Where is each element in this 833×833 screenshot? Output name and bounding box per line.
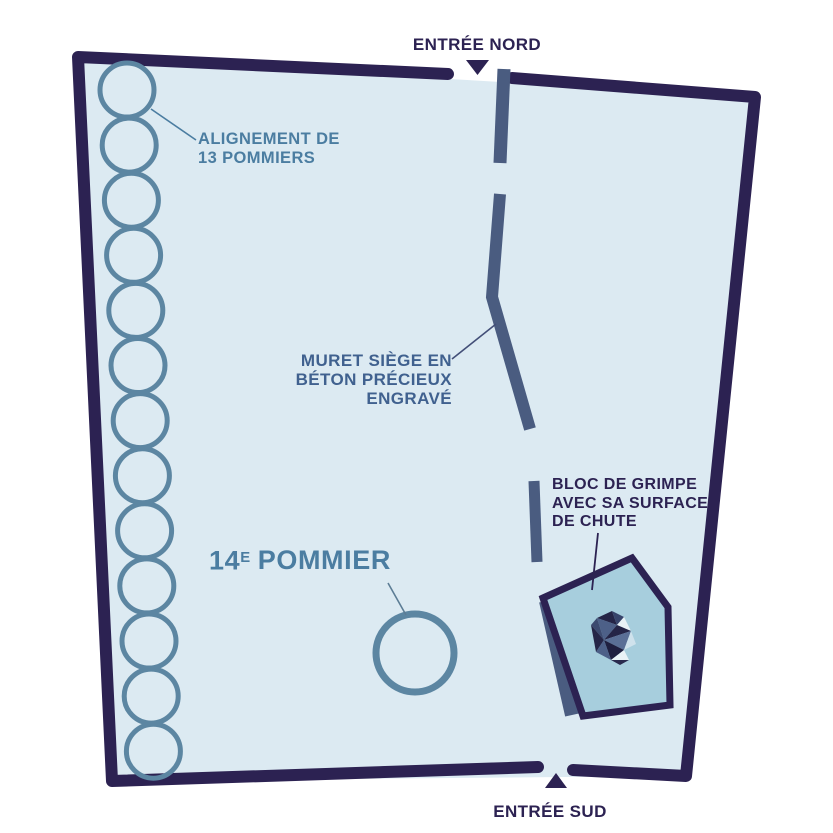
climbing-block-label-line1: BLOC DE GRIMPE: [552, 476, 708, 495]
seat-wall-label-line2: BÉTON PRÉCIEUX: [232, 370, 452, 389]
north-entrance-label: ENTRÉE NORD: [377, 35, 577, 54]
climbing-block-label-line3: DE CHUTE: [552, 513, 708, 532]
tree-14-name: POMMIER: [258, 545, 391, 575]
seat-wall-label-line1: MURET SIÈGE EN: [232, 351, 452, 370]
tree-14-ordinal: E: [240, 550, 251, 566]
north-entrance-arrow: [466, 60, 489, 75]
seat-wall-label-line3: ENGRAVÉ: [232, 389, 452, 408]
south-entrance-label: ENTRÉE SUD: [450, 802, 650, 821]
tree-row-label-line2: 13 POMMIERS: [198, 149, 340, 168]
site-plan: ENTRÉE NORD ALIGNEMENT DE 13 POMMIERS MU…: [0, 0, 833, 833]
tree-14-label: 14EPOMMIER: [209, 549, 391, 570]
tree-row-label: ALIGNEMENT DE 13 POMMIERS: [198, 130, 340, 168]
seat-wall-segment-1: [500, 69, 504, 163]
seat-wall-segment-3: [534, 481, 537, 562]
seat-wall-label: MURET SIÈGE EN BÉTON PRÉCIEUX ENGRAVÉ: [232, 351, 452, 408]
tree-row-label-line1: ALIGNEMENT DE: [198, 130, 340, 149]
tree-14-number: 14: [209, 545, 240, 575]
climbing-block-label: BLOC DE GRIMPE AVEC SA SURFACE DE CHUTE: [552, 476, 708, 532]
climbing-block-label-line2: AVEC SA SURFACE: [552, 495, 708, 514]
site-plan-drawing: [0, 0, 833, 833]
